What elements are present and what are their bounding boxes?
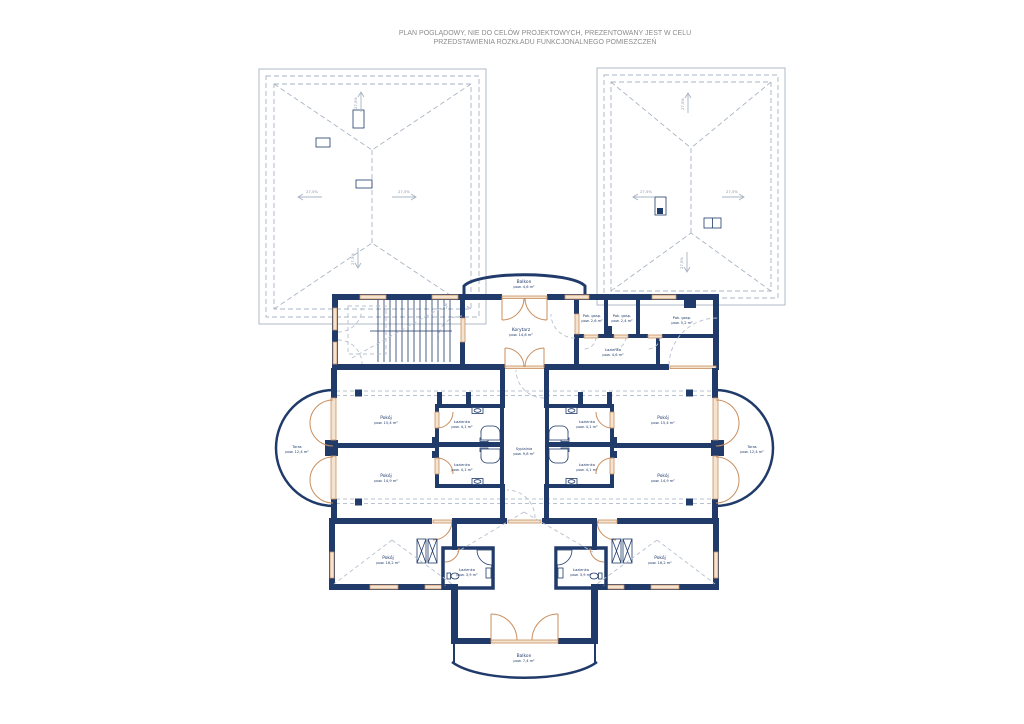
window xyxy=(360,295,386,299)
svg-text:pow. 4,6 m²: pow. 4,6 m² xyxy=(513,285,535,289)
room-label-pokoj-3: Pokójpow. 15,4 m² xyxy=(651,414,675,425)
chimney-flue-icon xyxy=(657,208,663,214)
room-label-lazienka-1: Łazienkapow. 4,1 m² xyxy=(451,420,473,429)
roof-plan-right: 27,5% 27,5% 27,5% 27,5% xyxy=(597,68,785,305)
disclaimer-note: PLAN POGLĄDOWY, NIE DO CELÓW PROJEKTOWYC… xyxy=(399,28,691,46)
svg-text:pow. 14,9 m²: pow. 14,9 m² xyxy=(374,479,398,483)
svg-text:Taras: Taras xyxy=(291,445,301,449)
walls-bottom xyxy=(329,520,719,644)
door xyxy=(575,314,579,334)
room-label-lazienka-6: Łazienkapow. 3,9 m² xyxy=(570,568,592,577)
svg-text:pow. 5,2 m²: pow. 5,2 m² xyxy=(671,321,693,325)
plan-drawing: PLAN POGLĄDOWY, NIE DO CELÓW PROJEKTOWYC… xyxy=(0,0,1024,724)
disclaimer-line1: PLAN POGLĄDOWY, NIE DO CELÓW PROJEKTOWYC… xyxy=(399,28,691,37)
room-label-pokoj-6: Pokójpow. 16,2 m² xyxy=(648,554,672,565)
wardrobe xyxy=(417,539,632,563)
door xyxy=(435,412,439,428)
svg-text:pow. 2,6 m²: pow. 2,6 m² xyxy=(581,319,603,323)
door xyxy=(670,366,716,369)
room-label-lazienka-2: Łazienkapow. 4,1 m² xyxy=(451,463,473,472)
walls-mid xyxy=(325,368,724,524)
svg-text:pow. 12,4 m²: pow. 12,4 m² xyxy=(740,450,764,454)
duct-shaft xyxy=(604,326,612,334)
svg-text:Pokój: Pokój xyxy=(380,414,391,421)
door xyxy=(508,520,541,523)
svg-text:Łazienka: Łazienka xyxy=(578,463,595,467)
room-label-balkon-dolny: Balkonpow. 7,4 m² xyxy=(513,653,535,663)
svg-text:Sypialnia: Sypialnia xyxy=(516,447,532,451)
stair-door xyxy=(461,318,465,342)
svg-text:pow. 7,4 m²: pow. 7,4 m² xyxy=(513,659,535,663)
entry-door xyxy=(333,308,337,330)
svg-text:Pokój: Pokój xyxy=(657,472,668,479)
window xyxy=(714,552,718,578)
floor-plan-page: PLAN POGLĄDOWY, NIE DO CELÓW PROJEKTOWYC… xyxy=(0,0,1024,724)
svg-text:Łazienka: Łazienka xyxy=(453,463,470,467)
room-label-pok-gosp-2: Pok. gosp.pow. 2,4 m² xyxy=(611,314,633,323)
garden-door xyxy=(491,640,558,643)
svg-text:Pokój: Pokój xyxy=(380,472,391,479)
room-label-taras-lewy: Taraspow. 12,4 m² xyxy=(285,445,309,454)
svg-text:Pokój: Pokój xyxy=(654,554,665,561)
svg-text:pow. 15,4 m²: pow. 15,4 m² xyxy=(374,421,398,425)
svg-text:pow. 3,9 m²: pow. 3,9 m² xyxy=(570,573,592,577)
svg-text:pow. 4,1 m²: pow. 4,1 m² xyxy=(451,425,473,429)
room-label-pok-gosp-1: Pok. gosp.pow. 2,6 m² xyxy=(581,314,603,323)
svg-text:pow. 14,8 m²: pow. 14,8 m² xyxy=(509,333,533,337)
svg-text:27,5%: 27,5% xyxy=(398,189,410,194)
svg-text:Pokój: Pokój xyxy=(382,554,393,561)
svg-text:pow. 12,4 m²: pow. 12,4 m² xyxy=(285,450,309,454)
toilet xyxy=(590,573,602,579)
window xyxy=(652,295,676,299)
svg-text:27,5%: 27,5% xyxy=(353,97,358,109)
svg-text:Łazienka: Łazienka xyxy=(604,348,621,352)
svg-text:pow. 14,9 m²: pow. 14,9 m² xyxy=(651,479,675,483)
svg-text:27,5%: 27,5% xyxy=(726,189,738,194)
chimney-icon xyxy=(316,138,330,147)
door xyxy=(610,412,614,428)
room-label-pok-gosp-3: Pok. gosp.pow. 5,2 m² xyxy=(671,316,693,325)
svg-text:pow. 4,6 m²: pow. 4,6 m² xyxy=(602,353,624,357)
sink xyxy=(486,568,491,578)
room-label-lazienka-gorna: Łazienkapow. 4,6 m² xyxy=(602,348,624,357)
sink xyxy=(558,568,563,578)
svg-text:Łazienka: Łazienka xyxy=(458,568,475,572)
svg-text:Łazienka: Łazienka xyxy=(572,568,589,572)
room-label-taras-prawy: Taraspow. 12,4 m² xyxy=(740,445,764,454)
svg-text:Pok. gosp.: Pok. gosp. xyxy=(583,314,601,318)
window xyxy=(330,552,334,578)
room-label-lazienka-5: Łazienkapow. 3,9 m² xyxy=(456,568,478,577)
room-label-lazienka-4: Łazienkapow. 4,1 m² xyxy=(576,463,598,472)
svg-text:Pok. gosp.: Pok. gosp. xyxy=(613,314,631,318)
duct-shaft xyxy=(684,300,696,308)
svg-text:27,5%: 27,5% xyxy=(350,253,355,265)
chimney-icon xyxy=(356,180,372,188)
svg-text:pow. 4,1 m²: pow. 4,1 m² xyxy=(451,468,473,472)
door xyxy=(433,520,452,523)
openings-bottom xyxy=(330,552,718,643)
svg-text:pow. 15,4 m²: pow. 15,4 m² xyxy=(651,421,675,425)
svg-text:27,5%: 27,5% xyxy=(680,98,685,110)
room-label-pokoj-1: Pokójpow. 15,4 m² xyxy=(374,414,398,425)
svg-text:Pok. gosp.: Pok. gosp. xyxy=(673,316,691,320)
room-label-pokoj-5: Pokójpow. 16,2 m² xyxy=(376,554,400,565)
svg-text:Pokój: Pokój xyxy=(657,414,668,421)
room-label-pokoj-4: Pokójpow. 14,9 m² xyxy=(651,472,675,483)
room-label-pokoj-2: Pokójpow. 14,9 m² xyxy=(374,472,398,483)
svg-text:pow. 4,1 m²: pow. 4,1 m² xyxy=(576,468,598,472)
svg-text:pow. 16,2 m²: pow. 16,2 m² xyxy=(376,561,400,565)
shower xyxy=(557,550,572,565)
svg-text:pow. 2,4 m²: pow. 2,4 m² xyxy=(611,319,633,323)
roof-slope-arrow: 27,5% 27,5% 27,5% 27,5% xyxy=(633,93,744,272)
svg-text:Łazienka: Łazienka xyxy=(453,420,470,424)
door xyxy=(598,520,617,523)
door xyxy=(610,458,614,474)
room-label-balkon-gorny: Balkonpow. 4,6 m² xyxy=(513,279,535,289)
svg-text:27,5%: 27,5% xyxy=(640,189,652,194)
shower xyxy=(477,550,492,565)
svg-text:pow. 3,9 m²: pow. 3,9 m² xyxy=(456,573,478,577)
window xyxy=(651,585,679,589)
disclaimer-line2: PRZEDSTAWIENIA ROZKŁADU FUNKCJONALNEGO P… xyxy=(434,37,657,46)
window xyxy=(370,585,398,589)
svg-text:pow. 16,2 m²: pow. 16,2 m² xyxy=(648,561,672,565)
svg-text:Taras: Taras xyxy=(746,445,756,449)
window xyxy=(565,295,589,299)
room-label-korytarz: Korytarzpow. 14,8 m² xyxy=(509,327,533,337)
floor-plan: Balkonpow. 4,6 m² Korytarzpow. 14,8 m² P… xyxy=(276,275,773,678)
door xyxy=(435,458,439,474)
hall-door xyxy=(505,366,544,369)
roof-plan-left: 27,5% 27,5% 27,5% 27,5% xyxy=(259,69,486,324)
balcony-door xyxy=(502,296,547,299)
window xyxy=(432,295,458,299)
svg-text:pow. 9,8 m²: pow. 9,8 m² xyxy=(513,452,535,456)
svg-text:27,5%: 27,5% xyxy=(679,257,684,269)
entry-door xyxy=(333,342,337,364)
svg-text:Łazienka: Łazienka xyxy=(578,420,595,424)
svg-text:27,5%: 27,5% xyxy=(306,189,318,194)
svg-text:pow. 4,1 m²: pow. 4,1 m² xyxy=(576,425,598,429)
room-label-lazienka-3: Łazienkapow. 4,1 m² xyxy=(576,420,598,429)
chimney-icon xyxy=(353,110,364,128)
room-label-sypialnia: Sypialniapow. 9,8 m² xyxy=(513,447,535,456)
